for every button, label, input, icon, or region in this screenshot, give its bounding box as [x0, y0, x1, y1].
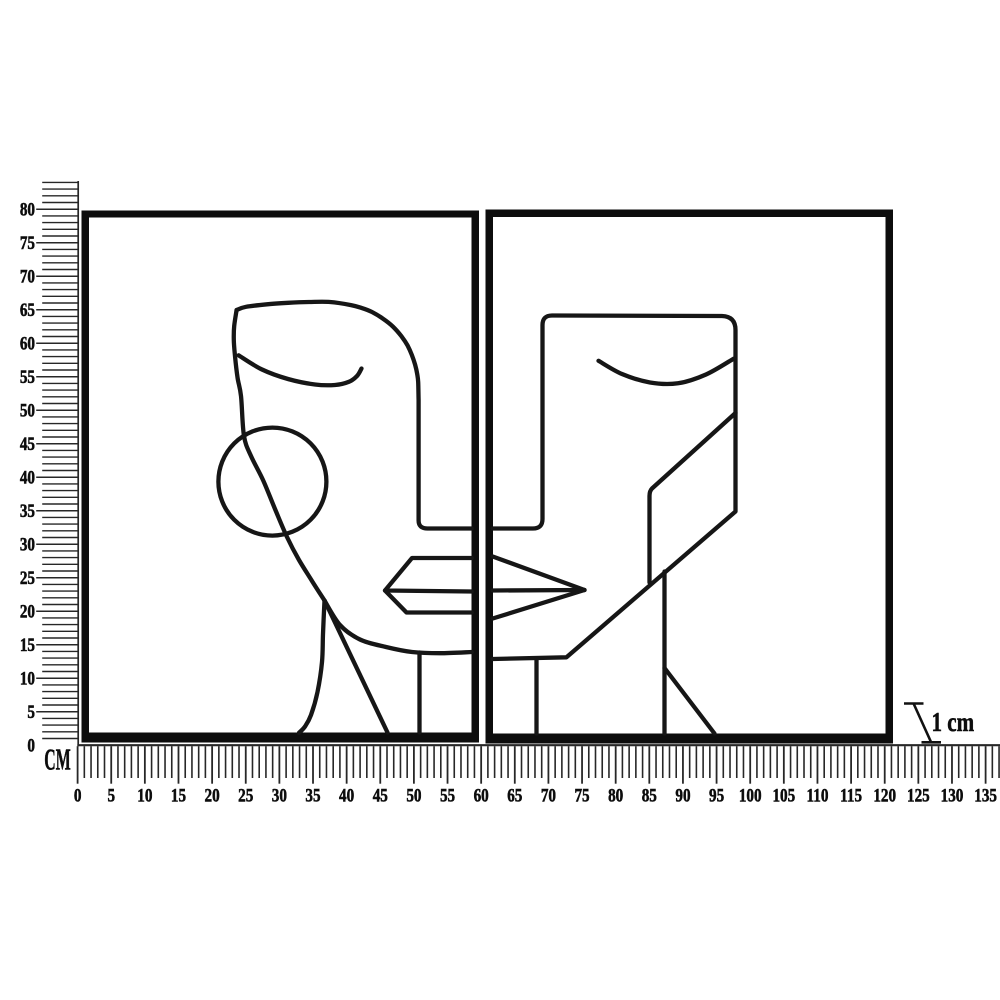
svg-text:95: 95 [709, 785, 724, 806]
svg-text:25: 25 [238, 785, 253, 806]
svg-text:40: 40 [339, 785, 354, 806]
svg-text:70: 70 [20, 266, 35, 287]
svg-text:80: 80 [20, 199, 35, 220]
svg-text:20: 20 [20, 601, 35, 622]
svg-text:15: 15 [20, 634, 35, 655]
svg-text:65: 65 [20, 299, 35, 320]
svg-text:55: 55 [20, 366, 35, 387]
svg-text:50: 50 [20, 400, 35, 421]
svg-text:55: 55 [440, 785, 455, 806]
svg-text:35: 35 [305, 785, 320, 806]
svg-text:35: 35 [20, 500, 35, 521]
svg-text:45: 45 [20, 433, 35, 454]
svg-text:40: 40 [20, 467, 35, 488]
svg-text:CM: CM [44, 743, 70, 777]
svg-text:125: 125 [907, 785, 930, 806]
svg-text:50: 50 [406, 785, 421, 806]
svg-text:70: 70 [541, 785, 556, 806]
svg-text:0: 0 [74, 785, 82, 806]
svg-text:1 cm: 1 cm [932, 708, 975, 738]
svg-text:30: 30 [20, 534, 35, 555]
svg-text:45: 45 [373, 785, 388, 806]
svg-text:80: 80 [608, 785, 623, 806]
svg-text:75: 75 [20, 232, 35, 253]
svg-text:115: 115 [840, 785, 862, 806]
svg-text:10: 10 [20, 668, 35, 689]
svg-text:60: 60 [20, 333, 35, 354]
svg-text:20: 20 [205, 785, 220, 806]
svg-text:90: 90 [675, 785, 690, 806]
svg-text:30: 30 [272, 785, 287, 806]
svg-text:60: 60 [474, 785, 489, 806]
svg-text:10: 10 [137, 785, 152, 806]
svg-text:15: 15 [171, 785, 186, 806]
svg-text:85: 85 [642, 785, 657, 806]
svg-text:0: 0 [27, 735, 35, 756]
svg-text:100: 100 [739, 785, 762, 806]
svg-text:105: 105 [772, 785, 795, 806]
svg-text:75: 75 [574, 785, 589, 806]
svg-text:130: 130 [941, 785, 964, 806]
svg-text:5: 5 [27, 701, 35, 722]
svg-text:25: 25 [20, 567, 35, 588]
svg-text:5: 5 [107, 785, 115, 806]
svg-text:65: 65 [507, 785, 522, 806]
svg-text:120: 120 [873, 785, 896, 806]
svg-text:110: 110 [807, 785, 829, 806]
svg-text:135: 135 [974, 785, 997, 806]
